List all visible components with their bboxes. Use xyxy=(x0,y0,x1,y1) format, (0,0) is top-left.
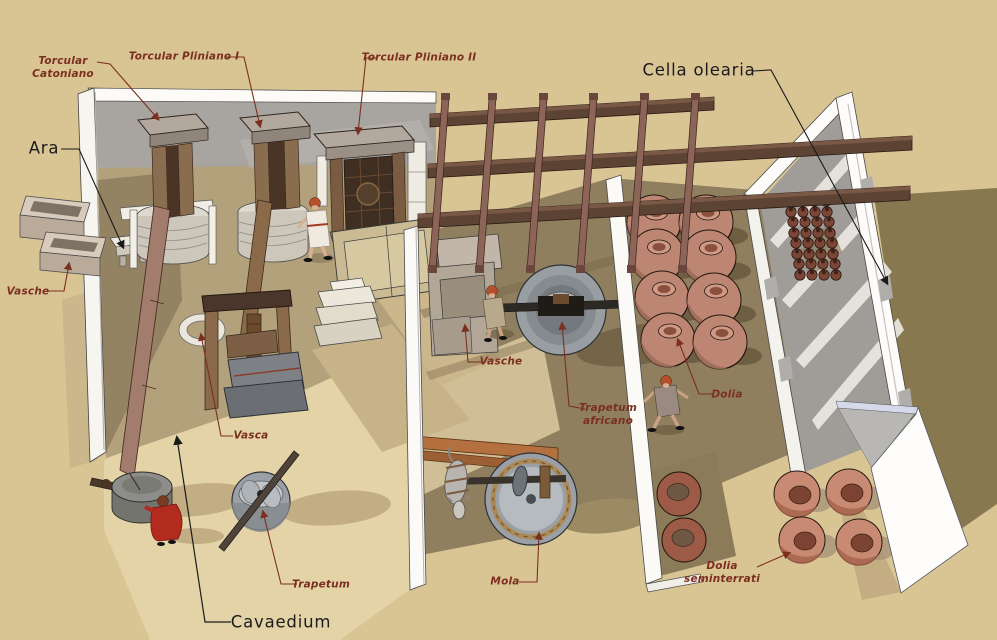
roman-oil-mill-reconstruction: Torcular Catoniano Torcular Pliniano I T… xyxy=(0,0,997,640)
label-torcular-pliniano-ii: Torcular Pliniano II xyxy=(362,51,477,64)
scene-3d xyxy=(0,0,997,640)
label-cavaedium: Cavaedium xyxy=(231,613,331,634)
dolium-buried xyxy=(657,472,701,516)
dolium xyxy=(641,313,695,367)
label-line: Dolia xyxy=(684,560,760,573)
label-ara: Ara xyxy=(29,139,60,160)
label-line: africano xyxy=(579,415,637,428)
label-torcular-pliniano-i: Torcular Pliniano I xyxy=(129,50,240,63)
dolium-buried xyxy=(826,469,872,516)
label-vasche-left: Vasche xyxy=(7,285,50,298)
label-dolia-seminterrati: Dolia seminterrati xyxy=(684,560,760,586)
label-cella-olearia: Cella olearia xyxy=(642,61,755,82)
label-dolia: Dolia xyxy=(711,388,742,401)
dolium-buried xyxy=(774,471,820,518)
label-line: Trapetum xyxy=(579,402,637,415)
label-vasche-mid: Vasche xyxy=(480,355,523,368)
label-line: Catoniano xyxy=(32,68,94,81)
dolium-buried xyxy=(779,517,825,564)
label-line: Torcular xyxy=(32,55,94,68)
label-mola: Mola xyxy=(490,575,519,588)
dolium xyxy=(693,315,747,369)
label-trapetum-africano: Trapetum africano xyxy=(579,402,637,428)
dolium-buried xyxy=(662,518,706,562)
label-trapetum: Trapetum xyxy=(292,578,350,591)
label-torcular-catoniano: Torcular Catoniano xyxy=(32,55,94,81)
dolium-buried xyxy=(836,519,882,566)
label-vasca: Vasca xyxy=(234,429,269,442)
label-line: seminterrati xyxy=(684,573,760,586)
